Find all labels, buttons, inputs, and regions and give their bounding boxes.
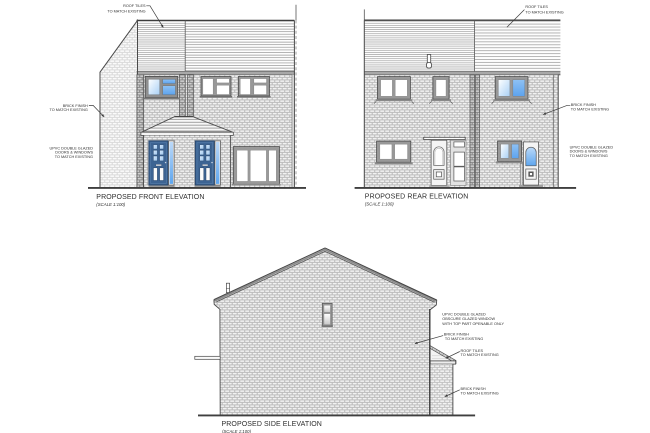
svg-text:ROOF TILES: ROOF TILES bbox=[123, 4, 146, 8]
svg-text:TO MATCH EXISTING: TO MATCH EXISTING bbox=[107, 10, 145, 14]
svg-text:TO MATCH EXISTING: TO MATCH EXISTING bbox=[570, 154, 608, 158]
svg-text:TO MATCH EXISTING: TO MATCH EXISTING bbox=[461, 391, 499, 395]
svg-text:ROOF TILES: ROOF TILES bbox=[525, 5, 548, 9]
svg-text:WITH TOP PART OPENABLE ONLY: WITH TOP PART OPENABLE ONLY bbox=[442, 322, 504, 326]
svg-text:(SCALE 1:100): (SCALE 1:100) bbox=[222, 429, 251, 433]
svg-text:TO MATCH EXISTING: TO MATCH EXISTING bbox=[571, 108, 609, 112]
svg-text:(SCALE 1:100): (SCALE 1:100) bbox=[96, 202, 125, 207]
svg-text:PROPOSED REAR ELEVATION: PROPOSED REAR ELEVATION bbox=[365, 194, 469, 201]
svg-text:TO MATCH EXISTING: TO MATCH EXISTING bbox=[55, 155, 93, 159]
svg-text:TO MATCH EXISTING: TO MATCH EXISTING bbox=[50, 108, 88, 112]
svg-text:TO MATCH EXISTING: TO MATCH EXISTING bbox=[525, 10, 563, 14]
svg-text:(SCALE 1:100): (SCALE 1:100) bbox=[365, 202, 394, 207]
svg-text:UPVC DOUBLE GLAZED: UPVC DOUBLE GLAZED bbox=[442, 312, 486, 316]
svg-text:TO MATCH EXISTING: TO MATCH EXISTING bbox=[445, 337, 483, 341]
svg-text:PROPOSED SIDE ELEVATION: PROPOSED SIDE ELEVATION bbox=[222, 421, 322, 428]
svg-text:ROOF TILES: ROOF TILES bbox=[461, 349, 484, 353]
svg-text:BRICK FINISH: BRICK FINISH bbox=[444, 332, 469, 336]
svg-text:TO MATCH EXISTING: TO MATCH EXISTING bbox=[461, 353, 499, 357]
svg-text:PROPOSED FRONT ELEVATION: PROPOSED FRONT ELEVATION bbox=[96, 194, 204, 201]
svg-text:OBSCURE GLAZED WINDOW: OBSCURE GLAZED WINDOW bbox=[442, 317, 495, 321]
svg-text:BRICK FINISH: BRICK FINISH bbox=[461, 387, 486, 391]
